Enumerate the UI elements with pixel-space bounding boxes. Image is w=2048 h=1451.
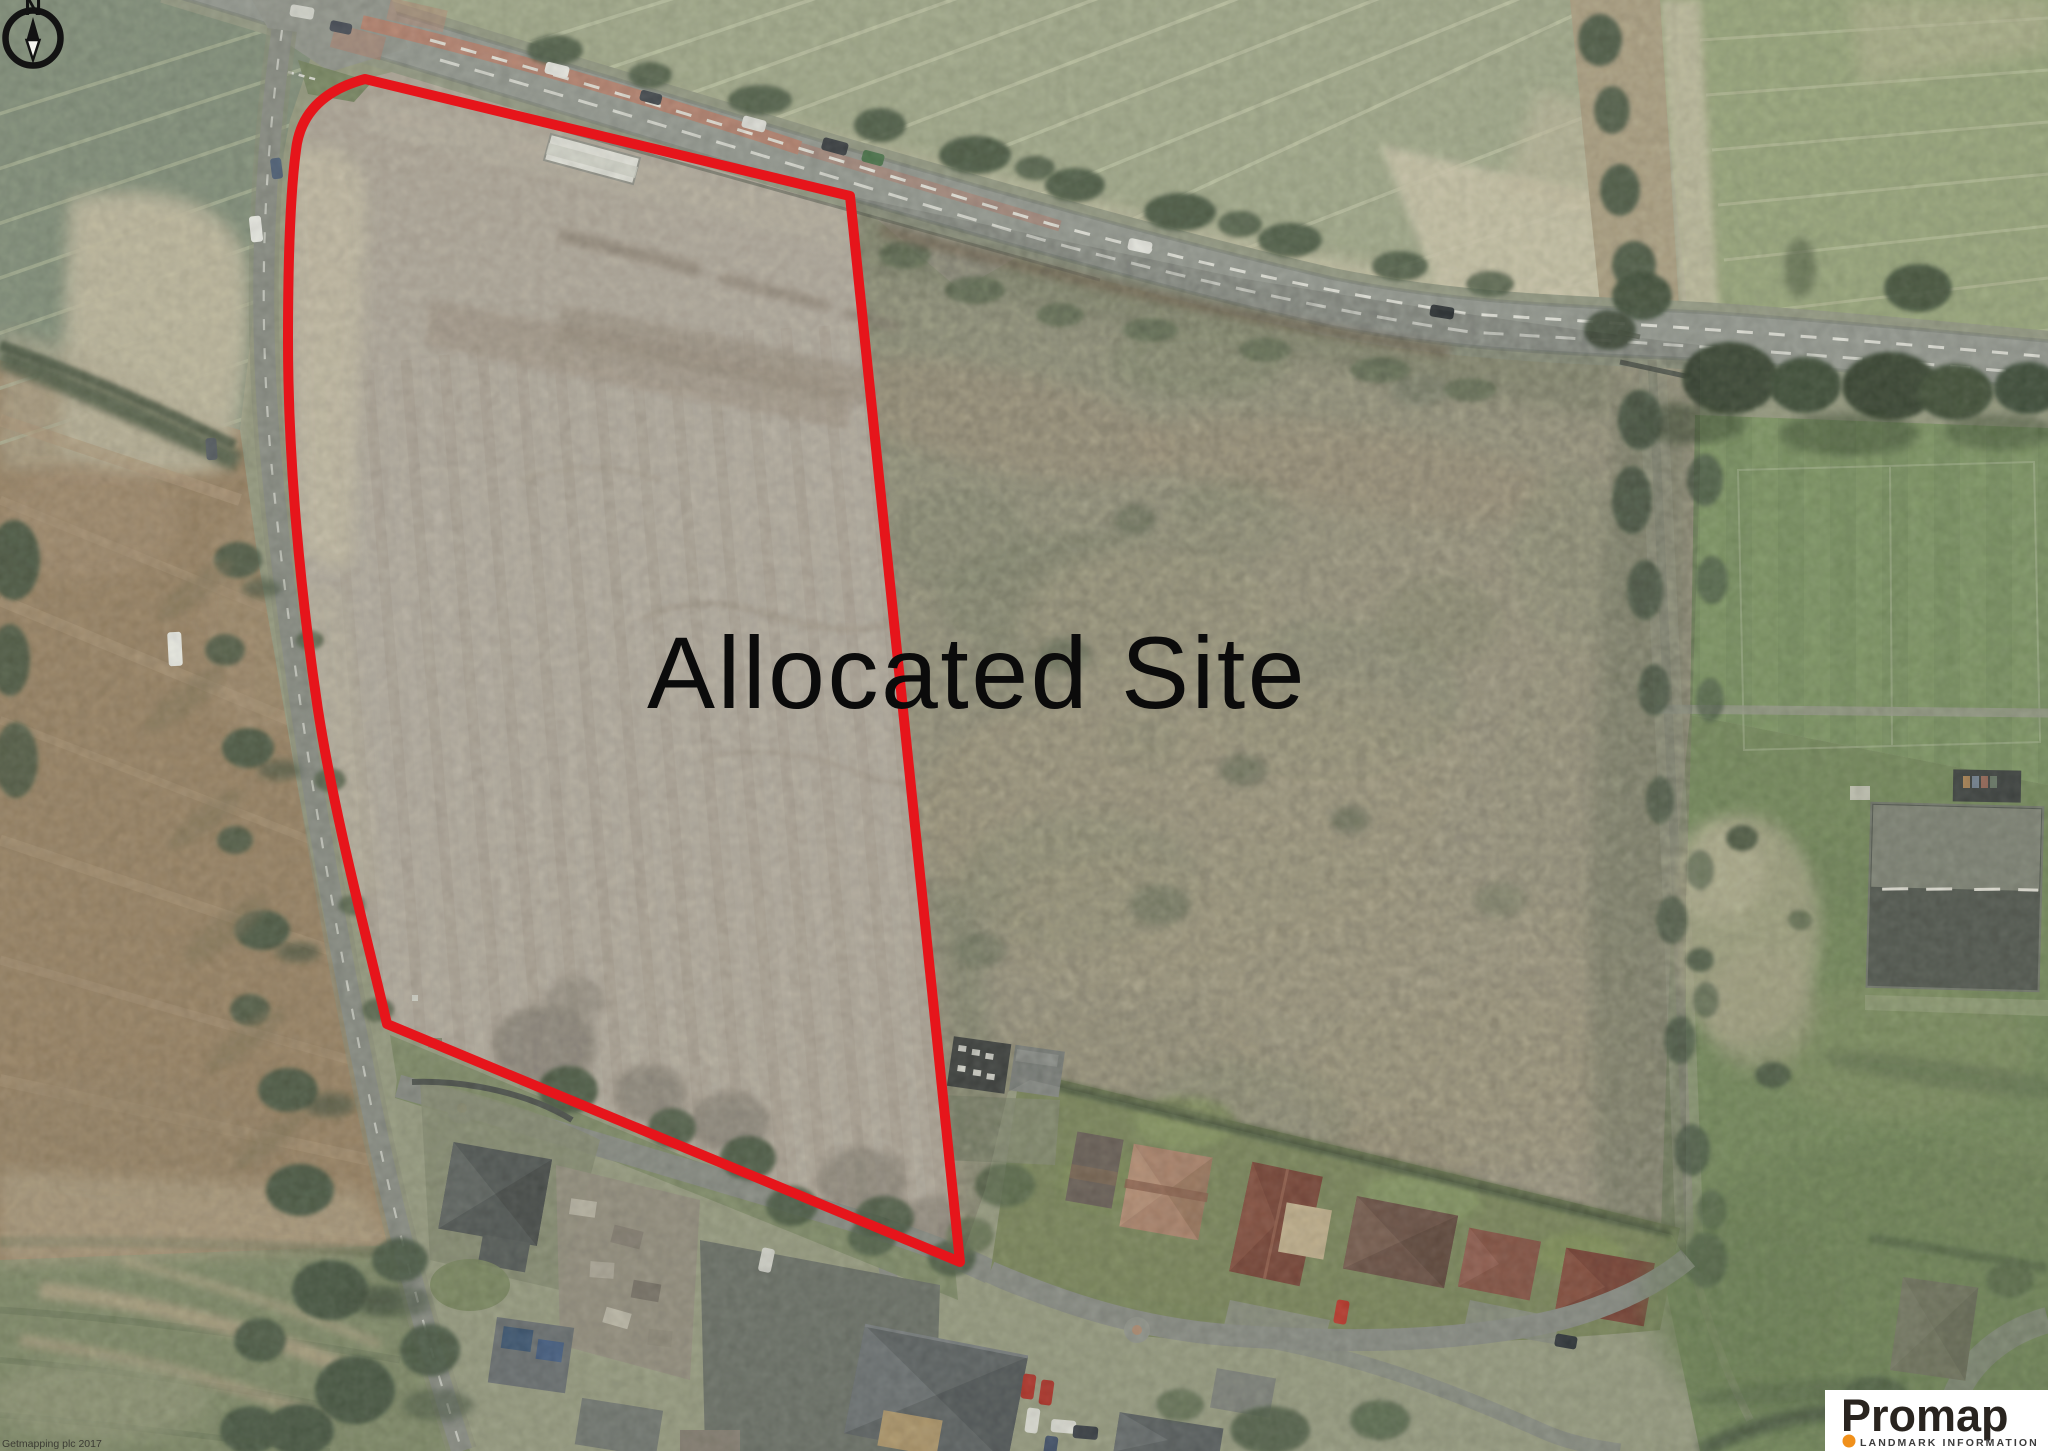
svg-text:Allocated Site: Allocated Site — [647, 616, 1307, 730]
svg-text:Promap: Promap — [1841, 1390, 2009, 1441]
svg-text:LANDMARK INFORMATION: LANDMARK INFORMATION — [1860, 1437, 2039, 1449]
svg-text:Getmapping plc 2017: Getmapping plc 2017 — [2, 1438, 102, 1450]
